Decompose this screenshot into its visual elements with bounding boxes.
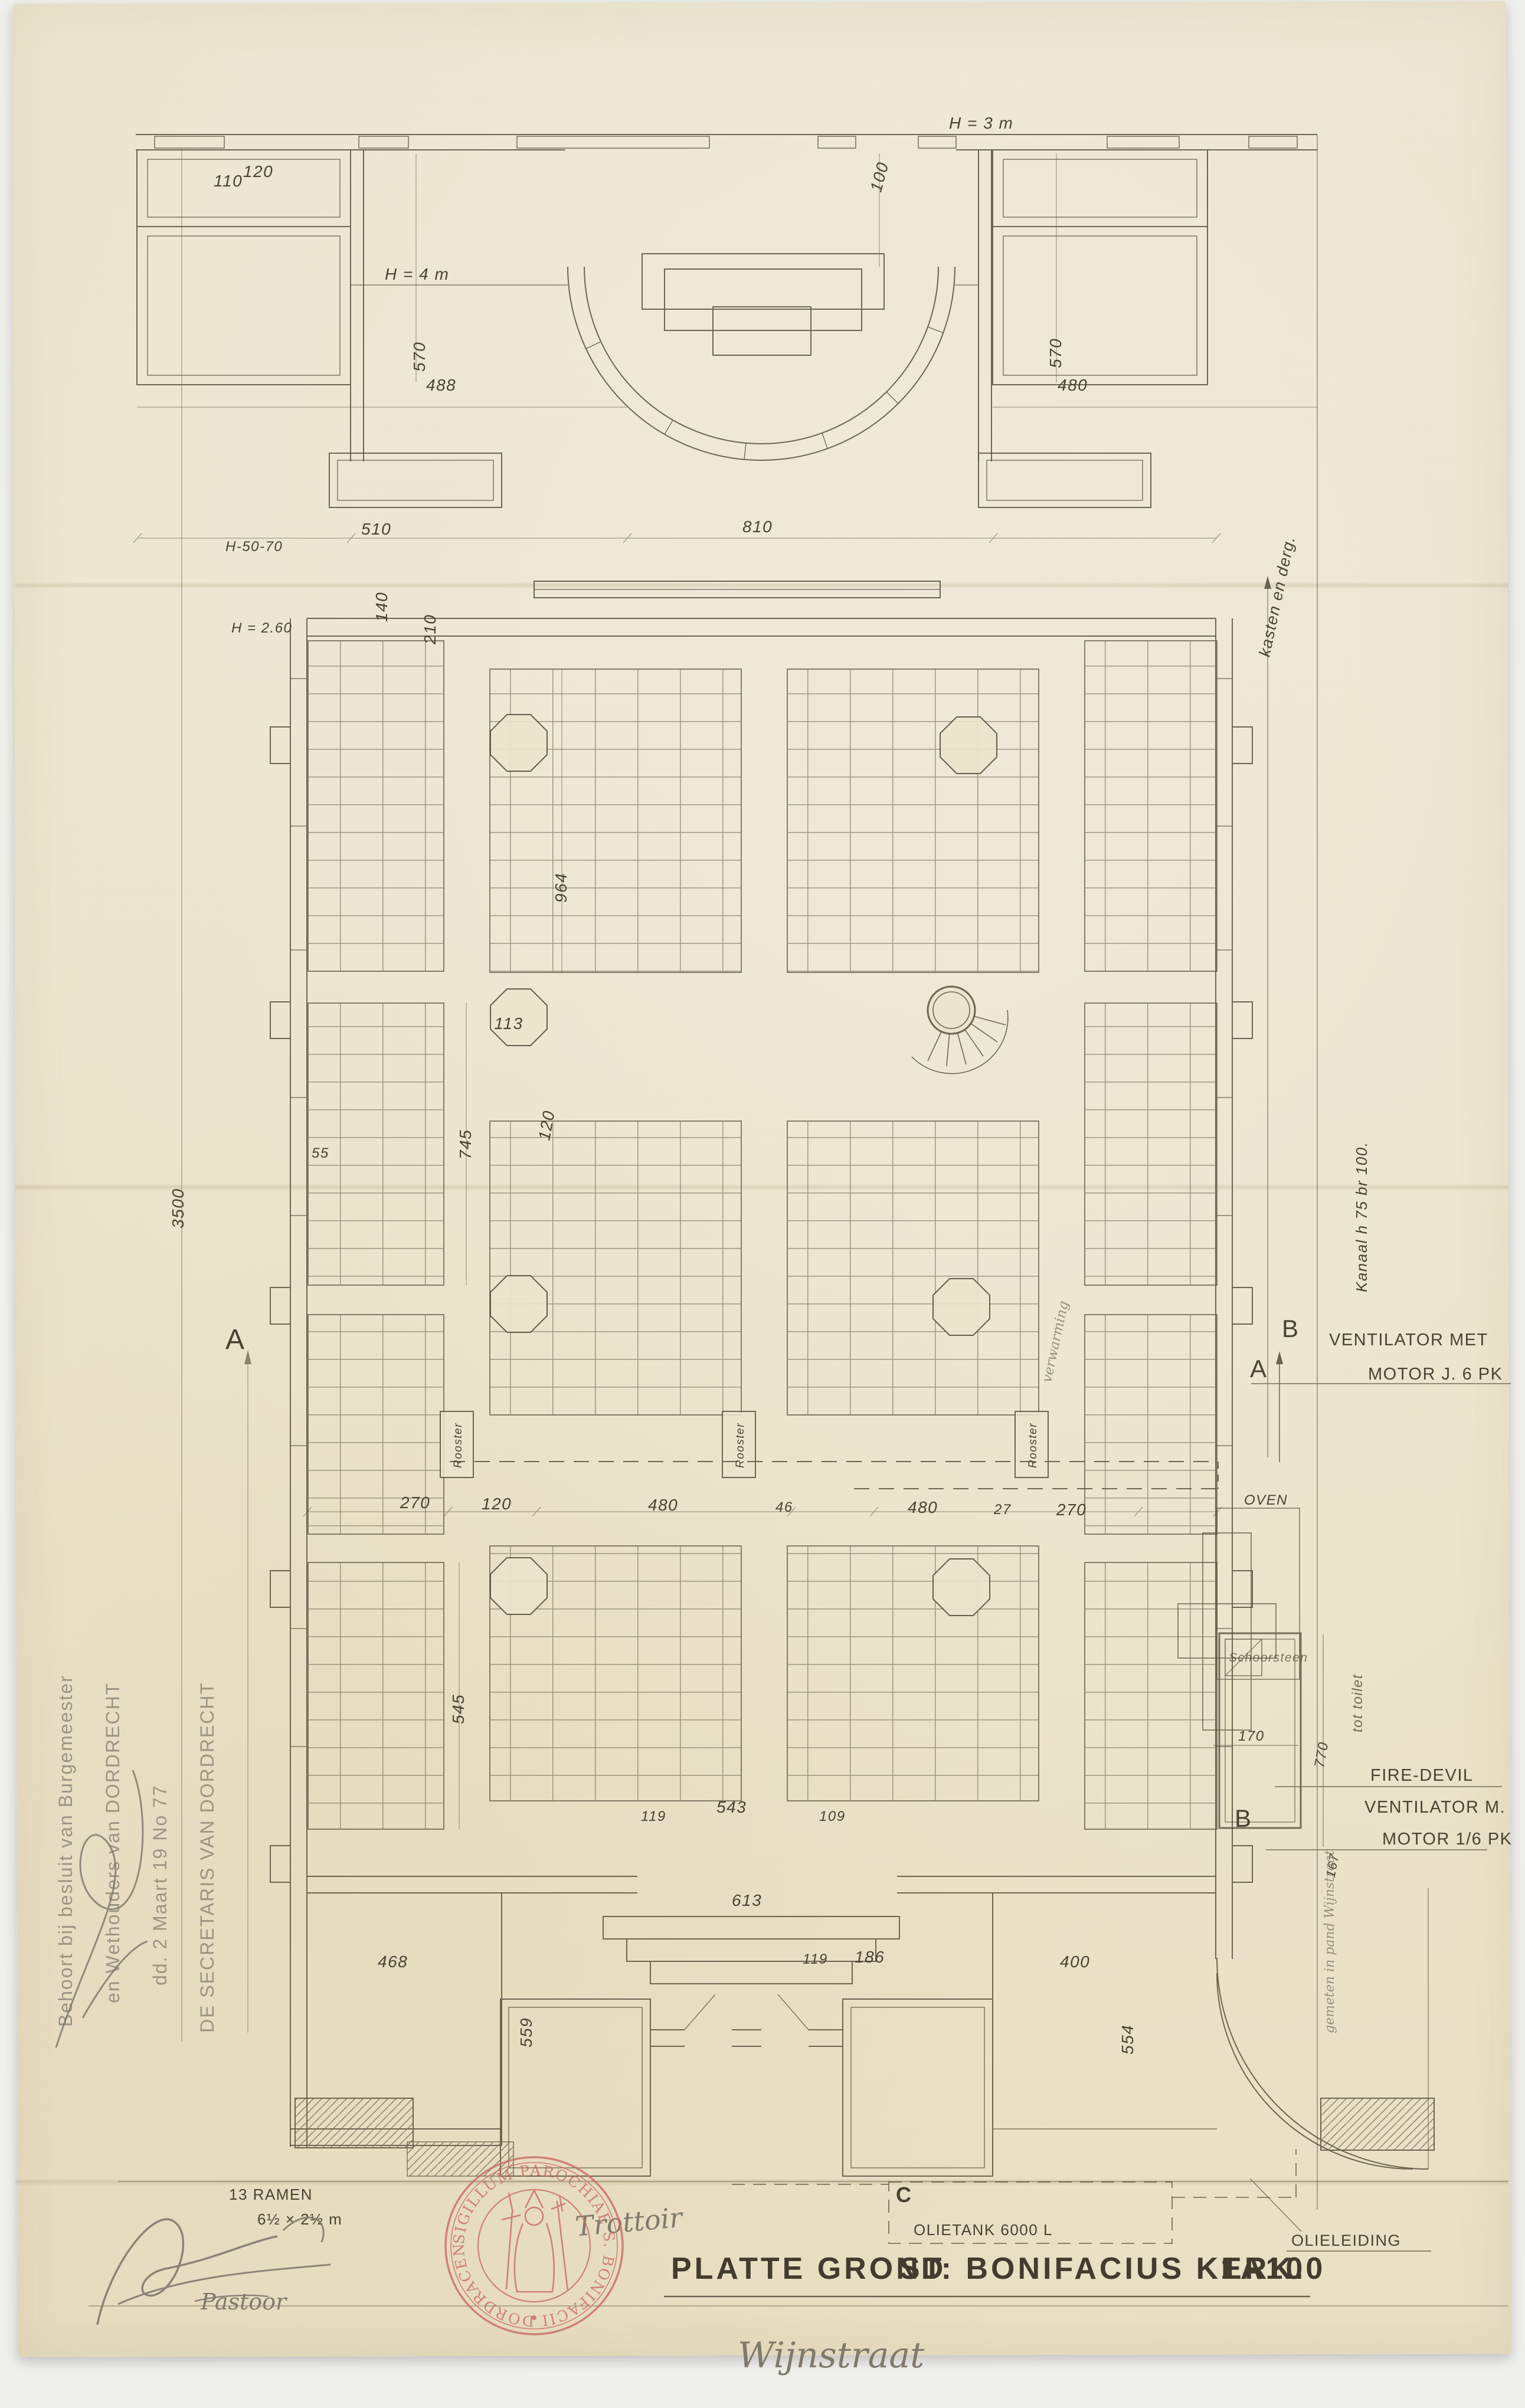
dim-label: 810 (742, 517, 773, 536)
column-count-label: 113 (494, 1014, 523, 1033)
fire-devil-note: FIRE-DEVIL (1370, 1766, 1474, 1785)
approval-line-1: Behoort bij besluit van Burgemeester (55, 1675, 76, 2027)
dim-label: H = 2.60 (231, 620, 292, 636)
section-a-right: A (1250, 1355, 1268, 1382)
dim-label: 46 (775, 1499, 793, 1515)
rooster-label: Rooster (452, 1423, 464, 1468)
municipal-approval-stamp: Behoort bij besluit van Burgemeester en … (55, 1675, 218, 2047)
dim-label: 170 (1238, 1728, 1265, 1744)
dim-label: H = 4 m (385, 265, 449, 283)
oven-note: OVEN (1244, 1492, 1288, 1508)
title-block: PLATTE GROND ST: BONIFACIUS KERK. 1A100 … (200, 2183, 1401, 2376)
dim-label: 120 (482, 1495, 512, 1513)
rooster-label: Rooster (734, 1423, 747, 1468)
section-b-bottom: B (1235, 1804, 1252, 1832)
dim-label: 570 (1046, 338, 1065, 368)
dim-label: 613 (732, 1891, 762, 1909)
vent-top-note: VENTILATOR MET (1329, 1331, 1488, 1349)
pastoor-note: Pastoor (200, 2289, 288, 2315)
approval-line-4: DE SECRETARIS VAN DORDRECHT (197, 1682, 218, 2033)
dim-label: 140 (372, 592, 391, 622)
toilet-note: tot toilet (1350, 1674, 1366, 1732)
fire-devil-note2: VENTILATOR M. (1364, 1798, 1506, 1817)
dim-label: 480 (1058, 376, 1088, 394)
dim-label: 488 (426, 376, 456, 394)
oil-tank-label: OLIETANK 6000 L (914, 2221, 1053, 2239)
kasten-note: kasten en derg. (1256, 534, 1299, 658)
seal-saint-figure (502, 2190, 568, 2292)
dim-label: 27 (993, 1502, 1012, 1518)
photographed-drawing: H = 3 m 110 120 100 H = 4 m 570 488 570 … (0, 0, 1525, 2408)
dim-label: 119 (803, 1951, 828, 1967)
dim-label: 468 (378, 1952, 408, 1971)
dim-label: 559 (517, 2017, 535, 2047)
street-name-label: Wijnstraat (738, 2335, 925, 2376)
dim-label: 554 (1118, 2024, 1137, 2055)
dim-label: 110 (214, 172, 243, 190)
dim-label: H-50-70 (225, 539, 283, 555)
kanaal-note: Kanaal h 75 br 100. (1353, 1142, 1370, 1292)
dim-label: 570 (410, 342, 428, 372)
approval-line-3: dd. 2 Maart 19 No 77 (149, 1784, 171, 1986)
dim-label: 745 (456, 1129, 474, 1159)
windows-note-1: 13 RAMEN (229, 2186, 313, 2203)
gemeten-note: gemeten in pand Wijnstraat (1323, 1850, 1337, 2033)
dim-label: 3500 (169, 1188, 187, 1228)
dim-label: 109 (819, 1809, 846, 1824)
dim-label: 480 (648, 1496, 678, 1514)
dim-label: 964 (552, 873, 570, 903)
fire-devil-note3: MOTOR 1/6 PK (1382, 1830, 1513, 1849)
pulpit-spiral-stair (912, 987, 1008, 1073)
dim-label: 270 (400, 1493, 430, 1512)
dim-label: 543 (716, 1798, 747, 1816)
vent-top-note2: MOTOR J. 6 PK (1368, 1365, 1503, 1384)
dim-label: 400 (1060, 1952, 1090, 1971)
schoorsteen-note: Schoorsteen (1229, 1651, 1308, 1665)
verwarming-note: verwarming (1039, 1299, 1072, 1384)
drawing-scale: 1A100 (1220, 2252, 1326, 2286)
dim-label: H = 3 m (949, 114, 1013, 132)
chancel-walls (136, 135, 1317, 461)
transept (307, 453, 1216, 636)
dim-label: 270 (1056, 1501, 1087, 1519)
dim-label: 186 (855, 1948, 885, 1966)
apse-arch (568, 254, 955, 460)
dim-label: 480 (908, 1498, 938, 1516)
oil-tank-marker: C (896, 2183, 912, 2207)
pew-blocks (308, 641, 1217, 1829)
floor-plan-svg: H = 3 m 110 120 100 H = 4 m 570 488 570 … (0, 0, 1525, 2408)
rooster-label: Rooster (1027, 1423, 1039, 1468)
dim-label: 545 (449, 1694, 467, 1724)
dim-label: 210 (421, 614, 439, 645)
dim-label: 510 (361, 520, 391, 538)
oil-line-label: OLIELEIDING (1291, 2232, 1401, 2249)
approval-line-2: en Wethouders van DORDRECHT (102, 1682, 123, 2003)
dim-label: 55 (312, 1145, 329, 1161)
section-a-left: A (225, 1324, 246, 1355)
dim-label: 100 (866, 160, 892, 194)
section-b-top: B (1282, 1315, 1300, 1342)
dim-label: 119 (641, 1809, 666, 1824)
dim-label: 120 (243, 162, 273, 181)
right-side-structures (1178, 135, 1511, 2210)
dim-label: 770 (1311, 1740, 1331, 1769)
